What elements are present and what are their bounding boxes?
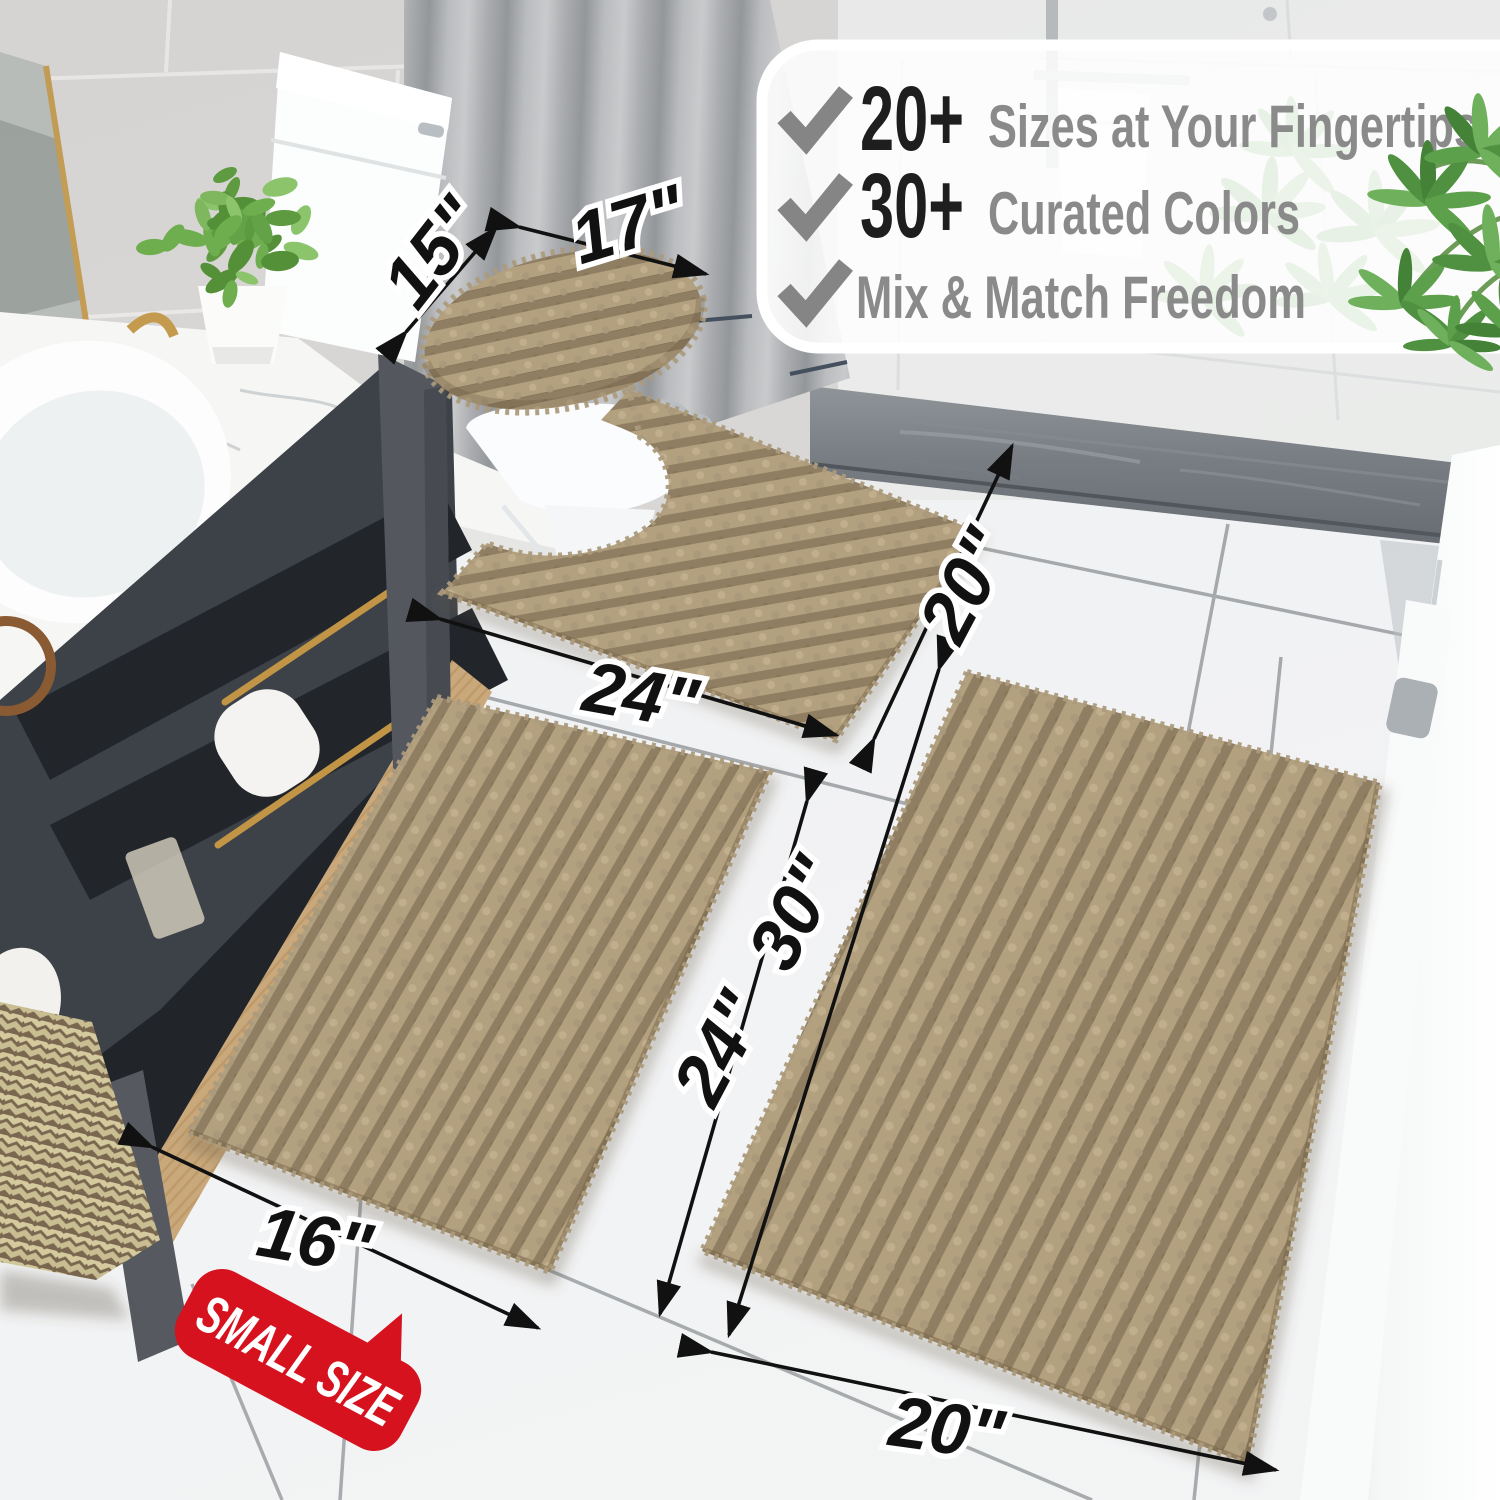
svg-text:Sizes at Your Fingertips: Sizes at Your Fingertips	[988, 93, 1478, 160]
svg-text:Curated Colors: Curated Colors	[988, 180, 1300, 247]
svg-text:Mix & Match Freedom: Mix & Match Freedom	[856, 264, 1306, 331]
svg-text:30+: 30+	[860, 155, 964, 257]
svg-text:20": 20"	[883, 1381, 1010, 1477]
